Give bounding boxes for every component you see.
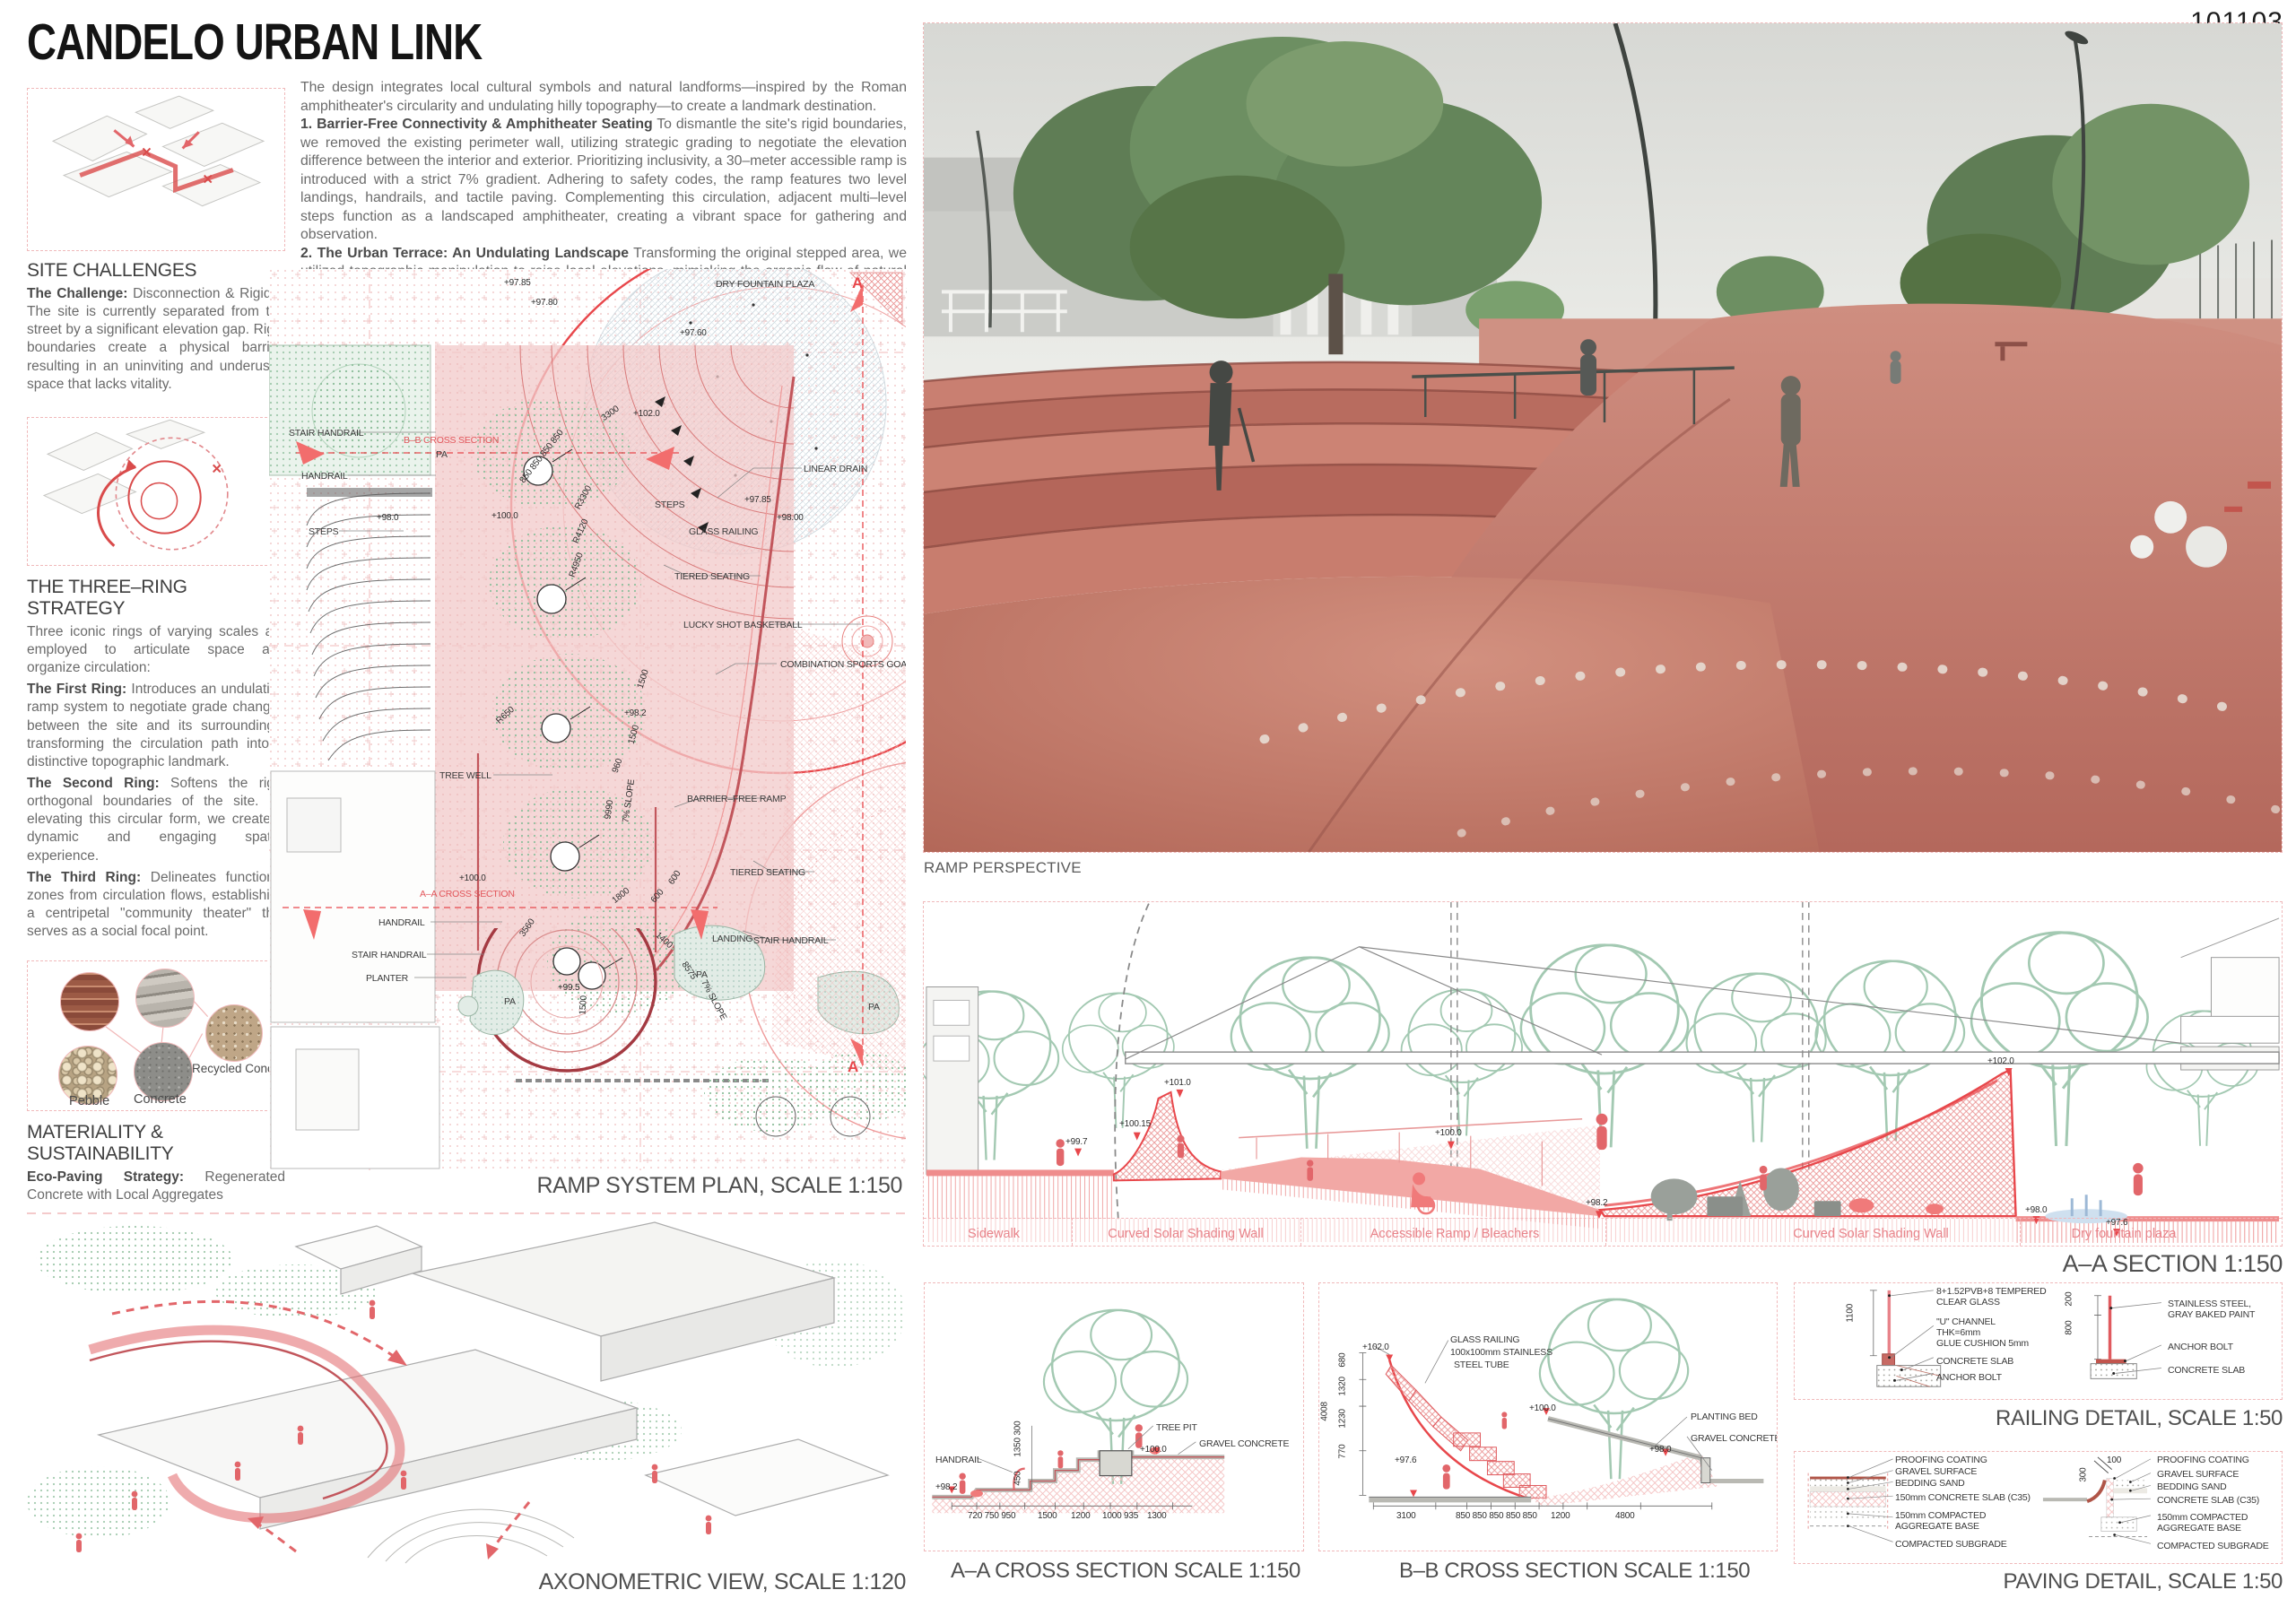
paving-caption: PAVING DETAIL, SCALE 1:50: [1794, 1569, 2283, 1594]
annotation: 1230: [1337, 1409, 1347, 1428]
zone-tick: [2020, 1218, 2021, 1246]
render-image: [924, 23, 2282, 852]
intro-point-1-text: To dismantle the site's rigid boundaries…: [300, 117, 907, 242]
annotation: ANCHOR BOLT: [1936, 1373, 2002, 1384]
annotation: 680: [1337, 1353, 1347, 1368]
annotation: GRAVEL SURFACE: [1895, 1467, 1977, 1478]
annotation: +98.2: [624, 708, 646, 718]
annotation: +101.0: [1164, 1078, 1191, 1088]
annotation: PA: [696, 970, 708, 981]
annotation: LANDING: [712, 934, 752, 945]
competition-board: 101103 CANDELO URBAN LINK The design int…: [0, 0, 2296, 1616]
annotation: +99.5: [558, 983, 579, 993]
annotation: STEPS: [655, 500, 684, 511]
annotation: 720 750 950: [968, 1511, 1015, 1521]
annotation: 1500: [1038, 1511, 1057, 1521]
annotation: STAIR HANDRAIL: [289, 429, 363, 439]
intro-overview: The design integrates local cultural sym…: [300, 79, 907, 116]
annotation: Sidewalk: [968, 1227, 1020, 1241]
annotation: 150mm COMPACTED: [1895, 1511, 1986, 1522]
annotation: +98.2: [935, 1482, 957, 1492]
annotation: 1500: [578, 995, 589, 1015]
annotation: Accessible Ramp / Bleachers: [1370, 1227, 1540, 1241]
zone-tick: [1072, 1218, 1073, 1246]
annotation: +102.0: [633, 409, 660, 419]
annotation: GRAVEL CONCRETE: [1691, 1434, 1778, 1445]
material-label-concrete: Concrete: [134, 1092, 187, 1107]
section-aa-drawing: [924, 902, 2282, 1246]
annotation: +97.80: [531, 298, 558, 308]
annotation: GRAVEL CONCRETE: [1199, 1439, 1289, 1450]
materiality-strategy-lead: Eco-Paving Strategy:: [27, 1169, 184, 1185]
annotation: 1000 935: [1102, 1511, 1138, 1521]
annotation: AGGREGATE BASE: [2157, 1524, 2241, 1534]
three-ring-sketch: [28, 418, 284, 565]
annotation: +97.85: [504, 278, 531, 288]
material-recycled-concrete-photo: [205, 1004, 263, 1062]
annotation: 3100: [1396, 1511, 1415, 1521]
annotation: 1200: [1071, 1511, 1090, 1521]
annotation: +98.0: [377, 513, 398, 523]
annotation: 800: [2064, 1321, 2074, 1335]
site-challenges-text: The Challenge: Disconnection & Rigidity …: [27, 285, 285, 394]
zone-divider-top: [924, 1218, 2282, 1219]
page-title: CANDELO URBAN LINK: [27, 13, 482, 72]
site-diagram-disconnection: [27, 88, 285, 251]
annotation: 150mm COMPACTED: [2157, 1513, 2248, 1524]
annotation: 770: [1337, 1445, 1347, 1459]
annotation: PLANTING BED: [1691, 1412, 1758, 1423]
annotation: 4800: [1615, 1511, 1634, 1521]
material-brick-photo: [60, 972, 119, 1031]
cross-section-aa: HANDRAIL+98.23001350450TREE PIT+100.0GRA…: [924, 1282, 1304, 1551]
annotation: 4008: [1319, 1402, 1329, 1421]
ramp-system-plan: +97.85+97.80DRY FOUNTAIN PLAZA+97.60ASTA…: [269, 269, 906, 1170]
axonometric-drawing: [27, 1206, 906, 1565]
annotation: +100.0: [459, 873, 486, 883]
materiality-heading: MATERIALITY & SUSTAINABILITY: [27, 1122, 285, 1165]
annotation: STAIR HANDRAIL: [753, 936, 828, 947]
section-caption: A–A SECTION 1:150: [923, 1250, 2283, 1278]
annotation: 850 850 850 850 850: [1456, 1511, 1537, 1521]
axon-caption: AXONOMETRIC VIEW, SCALE 1:120: [27, 1569, 906, 1595]
annotation: 300: [1013, 1421, 1022, 1436]
render-caption: RAMP PERSPECTIVE: [924, 859, 1082, 877]
annotation: STAIR HANDRAIL: [352, 951, 426, 961]
annotation: +102.0: [1987, 1056, 2014, 1066]
annotation: +100.0: [1435, 1128, 1462, 1138]
three-ring-heading: THE THREE–RING STRATEGY: [27, 577, 285, 620]
annotation: 150mm CONCRETE SLAB (C35): [1895, 1493, 2031, 1504]
plan-caption: RAMP SYSTEM PLAN, SCALE 1:150: [269, 1173, 902, 1199]
first-ring-text: The First Ring: Introduces an undulating…: [27, 681, 285, 771]
annotation: COMBINATION SPORTS GOAL: [780, 660, 906, 671]
annotation: STEPS: [309, 527, 338, 538]
site-challenges-lead: The Challenge:: [27, 286, 127, 301]
annotation: TIERED SEATING: [730, 868, 805, 879]
annotation: 450: [1013, 1472, 1022, 1486]
section-aa: +99.7+100.15+101.0+100.0+98.2+102.0+98.0…: [923, 901, 2283, 1247]
annotation: +100.15: [1119, 1119, 1151, 1129]
annotation: HANDRAIL: [378, 918, 425, 929]
zone-tick: [1605, 1218, 1606, 1246]
site-diagram-sketch: [28, 89, 284, 250]
annotation: Dry fountain plaza: [2072, 1227, 2177, 1241]
annotation: GRAVEL SURFACE: [2157, 1470, 2239, 1481]
annotation: PA: [868, 1003, 880, 1013]
annotation: THK=6mm: [1936, 1328, 1980, 1339]
railing-caption: RAILING DETAIL, SCALE 1:50: [1794, 1406, 2283, 1431]
annotation: 300: [2078, 1468, 2088, 1482]
railing-detail: 11008+1.52PVB+8 TEMPEREDCLEAR GLASS"U" C…: [1794, 1282, 2283, 1400]
annotation: +102.0: [1362, 1342, 1389, 1352]
annotation: GRAY BAKED PAINT: [2168, 1310, 2255, 1321]
annotation: A: [852, 274, 863, 291]
annotation: 1200: [1551, 1511, 1570, 1521]
paving-detail: PROOFING COATINGGRAVEL SURFACEBEDDING SA…: [1794, 1451, 2283, 1564]
annotation: 100: [2107, 1455, 2121, 1465]
annotation: COMPACTED SUBGRADE: [1895, 1540, 2007, 1551]
annotation: PROOFING COATING: [2157, 1455, 2249, 1466]
annotation: +97.6: [1395, 1455, 1416, 1465]
zone-tick: [1300, 1218, 1301, 1246]
materials-palette: Pebble Concrete Recycled Concrete: [27, 960, 285, 1111]
annotation: 1350: [1013, 1438, 1022, 1456]
site-challenges-body: Disconnection & Rigidity The site is cur…: [27, 286, 285, 392]
annotation: AGGREGATE BASE: [1895, 1522, 1979, 1533]
annotation: BEDDING SAND: [2157, 1482, 2227, 1493]
annotation: COMPACTED SUBGRADE: [2157, 1542, 2269, 1552]
annotation: HANDRAIL: [301, 472, 348, 482]
annotation: +97.60: [680, 328, 707, 338]
annotation: DRY FOUNTAIN PLAZA: [716, 280, 814, 291]
annotation: +98.0: [2025, 1205, 2047, 1215]
intro-point-2-lead: 2. The Urban Terrace: An Undulating Land…: [300, 246, 629, 261]
annotation: LUCKY SHOT BASKETBALL: [683, 621, 803, 631]
annotation: CONCRETE SLAB: [1936, 1357, 2013, 1368]
annotation: GLASS RAILING: [1450, 1335, 1519, 1346]
annotation: PROOFING COATING: [1895, 1455, 1987, 1466]
second-ring-lead: The Second Ring:: [27, 776, 160, 791]
annotation: BARRIER–FREE RAMP: [687, 795, 786, 805]
annotation: TREE WELL: [439, 771, 491, 782]
annotation: +99.7: [1065, 1137, 1087, 1147]
annotation: 200: [2064, 1292, 2074, 1307]
annotation: Curved Solar Shading Wall: [1108, 1227, 1264, 1241]
annotation: PA: [504, 997, 516, 1008]
intro-overview-text: The design integrates local cultural sym…: [300, 80, 907, 114]
ramp-system-plan-drawing: [269, 269, 906, 1170]
annotation: CLEAR GLASS: [1936, 1298, 2000, 1308]
third-ring-text: The Third Ring: Delineates functional zo…: [27, 869, 285, 942]
annotation: GLASS RAILING: [689, 527, 758, 538]
axonometric-view: [27, 1206, 906, 1565]
annotation: "U" CHANNEL: [1936, 1317, 1996, 1328]
material-steps-photo: [135, 969, 195, 1028]
annotation: TREE PIT: [1156, 1423, 1197, 1434]
annotation: PLANTER: [366, 974, 408, 985]
annotation: +100.0: [1529, 1403, 1556, 1413]
annotation: BEDDING SAND: [1895, 1479, 1965, 1490]
annotation: +100.0: [491, 511, 518, 521]
annotation: 100x100mm STAINLESS: [1450, 1348, 1552, 1359]
annotation: +100.0: [1140, 1445, 1167, 1455]
materiality-strategy: Eco-Paving Strategy: Regenerated Concret…: [27, 1169, 285, 1204]
annotation: +97.85: [744, 495, 771, 505]
intro-point-1-lead: 1. Barrier-Free Connectivity & Amphithea…: [300, 117, 653, 132]
intro-point-1: 1. Barrier-Free Connectivity & Amphithea…: [300, 116, 907, 245]
site-challenges-heading: SITE CHALLENGES: [27, 260, 285, 282]
cross-bb-caption: B–B CROSS SECTION SCALE 1:150: [1399, 1559, 1750, 1584]
annotation: 1320: [1337, 1377, 1347, 1395]
material-label-pebble: Pebble: [69, 1094, 109, 1108]
annotation: +98.0: [1649, 1445, 1671, 1455]
annotation: Curved Solar Shading Wall: [1793, 1227, 1949, 1241]
annotation: A–A CROSS SECTION: [420, 890, 515, 900]
annotation: B–B CROSS SECTION: [404, 436, 499, 447]
three-ring-intro: Three iconic rings of varying scales are…: [27, 623, 285, 677]
annotation: HANDRAIL: [935, 1455, 982, 1466]
annotation: STAINLESS STEEL,: [2168, 1299, 2251, 1310]
annotation: 8+1.52PVB+8 TEMPERED: [1936, 1287, 2046, 1298]
annotation: +98.00: [777, 513, 804, 523]
cross-aa-caption: A–A CROSS SECTION SCALE 1:150: [951, 1559, 1300, 1584]
cross-section-bb: 400868013201230770+102.0GLASS RAILING100…: [1318, 1282, 1778, 1551]
first-ring-lead: The First Ring:: [27, 682, 126, 697]
annotation: +98.2: [1586, 1198, 1607, 1208]
third-ring-lead: The Third Ring:: [27, 870, 141, 885]
ramp-perspective-render: [923, 22, 2283, 853]
annotation: TIERED SEATING: [674, 572, 750, 583]
second-ring-text: The Second Ring: Softens the rigid ortho…: [27, 775, 285, 865]
annotation: A: [848, 1058, 858, 1075]
annotation: CONCRETE SLAB: [2168, 1366, 2245, 1377]
annotation: CONCRETE SLAB (C35): [2157, 1496, 2259, 1507]
annotation: 1100: [1845, 1304, 1855, 1323]
three-ring-diagram: [27, 417, 285, 566]
annotation: ANCHOR BOLT: [2168, 1342, 2233, 1353]
left-sidebar: SITE CHALLENGES The Challenge: Disconnec…: [27, 88, 285, 1284]
annotation: LINEAR DRAIN: [804, 465, 867, 475]
annotation: 1300: [1147, 1511, 1166, 1521]
annotation: GLUE CUSHION 5mm: [1936, 1339, 2029, 1350]
annotation: STEEL TUBE: [1454, 1360, 1509, 1371]
annotation: PA: [436, 450, 448, 461]
